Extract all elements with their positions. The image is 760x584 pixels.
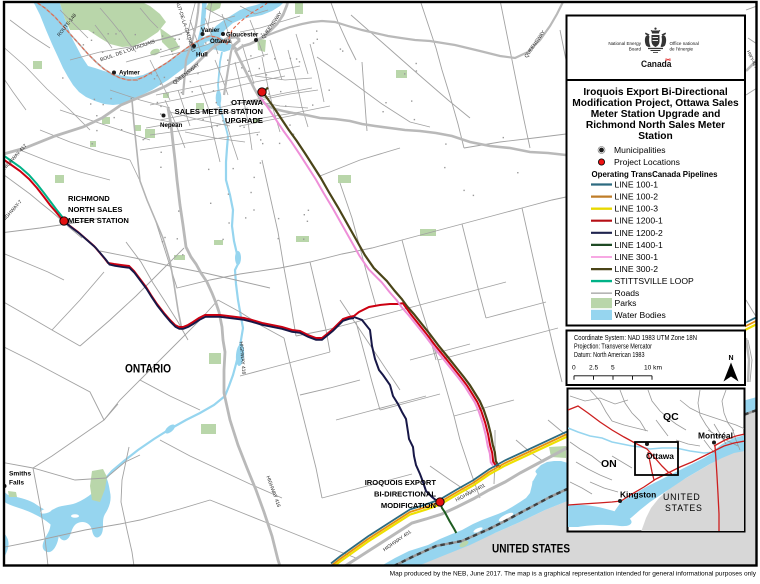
svg-text:Ottawa: Ottawa <box>646 451 674 461</box>
svg-text:Falls: Falls <box>9 480 24 487</box>
svg-text:Operating TransCanada Pipeline: Operating TransCanada Pipelines <box>592 169 718 179</box>
svg-text:OTTAWA: OTTAWA <box>231 98 263 107</box>
svg-text:UNITED: UNITED <box>663 492 701 502</box>
svg-text:Montréal: Montréal <box>698 431 733 441</box>
svg-text:Board: Board <box>629 47 642 52</box>
svg-text:MODIFICATION: MODIFICATION <box>381 501 436 510</box>
svg-text:Gloucester: Gloucester <box>226 32 259 39</box>
svg-text:Station: Station <box>638 131 673 142</box>
svg-text:LINE 1200-2: LINE 1200-2 <box>615 228 663 238</box>
svg-text:LINE 1200-1: LINE 1200-1 <box>615 216 663 226</box>
svg-text:ON: ON <box>601 458 617 470</box>
svg-text:Kingston: Kingston <box>620 490 656 500</box>
svg-text:Iroquois Export Bi-Directional: Iroquois Export Bi-Directional <box>583 87 728 98</box>
svg-text:SALES METER STATION: SALES METER STATION <box>175 107 263 116</box>
svg-text:QC: QC <box>663 411 679 423</box>
svg-text:de l'énergie: de l'énergie <box>670 47 694 52</box>
svg-text:N: N <box>728 355 733 362</box>
svg-text:UNITED STATES: UNITED STATES <box>492 542 570 556</box>
svg-text:BI-DIRECTIONAL: BI-DIRECTIONAL <box>374 490 436 499</box>
svg-text:5: 5 <box>611 365 615 372</box>
svg-text:Meter Station Upgrade and: Meter Station Upgrade and <box>591 109 721 120</box>
svg-text:LINE 100-1: LINE 100-1 <box>615 180 659 190</box>
svg-text:STATES: STATES <box>665 503 703 513</box>
svg-text:METER STATION: METER STATION <box>68 216 129 225</box>
svg-text:Roads: Roads <box>615 288 640 298</box>
svg-text:Ottawa: Ottawa <box>210 38 231 45</box>
svg-text:LINE 100-2: LINE 100-2 <box>615 192 659 202</box>
svg-text:Water Bodies: Water Bodies <box>615 310 666 320</box>
svg-text:STITTSVILLE LOOP: STITTSVILLE LOOP <box>615 276 695 286</box>
svg-text:Map produced by the NEB, June: Map produced by the NEB, June 2017. The … <box>390 571 757 578</box>
svg-text:Project Locations: Project Locations <box>614 157 680 167</box>
svg-text:NORTH SALES: NORTH SALES <box>68 205 122 214</box>
svg-text:Aylmer: Aylmer <box>119 70 140 77</box>
svg-text:IROQUOIS EXPORT: IROQUOIS EXPORT <box>365 478 437 487</box>
svg-text:Nepean: Nepean <box>160 122 183 129</box>
svg-text:UPGRADE: UPGRADE <box>225 116 263 125</box>
svg-text:Office national: Office national <box>670 41 699 46</box>
svg-text:Smiths: Smiths <box>9 471 31 478</box>
svg-text:Projection: Transverse Mercato: Projection: Transverse Mercator <box>574 344 653 351</box>
svg-text:National Energy: National Energy <box>608 41 641 46</box>
svg-text:10 km: 10 km <box>644 365 662 372</box>
svg-text:RICHMOND: RICHMOND <box>68 194 110 203</box>
svg-text:LINE 300-2: LINE 300-2 <box>615 264 659 274</box>
svg-text:Vanier: Vanier <box>201 27 220 34</box>
svg-text:Hull: Hull <box>196 52 208 59</box>
svg-text:Modification Project, Ottawa S: Modification Project, Ottawa Sales <box>572 98 739 109</box>
svg-text:ONTARIO: ONTARIO <box>125 364 171 376</box>
svg-text:Canada: Canada <box>641 59 672 70</box>
svg-text:LINE 300-1: LINE 300-1 <box>615 252 659 262</box>
svg-text:2.5: 2.5 <box>589 365 598 372</box>
svg-text:0: 0 <box>572 365 576 372</box>
svg-text:LINE 100-3: LINE 100-3 <box>615 204 659 214</box>
svg-text:Parks: Parks <box>615 298 637 308</box>
svg-text:LINE 1400-1: LINE 1400-1 <box>615 240 663 250</box>
svg-text:Datum: North American 1983: Datum: North American 1983 <box>574 352 645 359</box>
svg-text:Municipalities: Municipalities <box>614 145 666 155</box>
svg-text:Coordinate System: NAD 1983 UT: Coordinate System: NAD 1983 UTM Zone 18N <box>574 335 697 342</box>
svg-text:Richmond North Sales Meter: Richmond North Sales Meter <box>586 120 725 131</box>
